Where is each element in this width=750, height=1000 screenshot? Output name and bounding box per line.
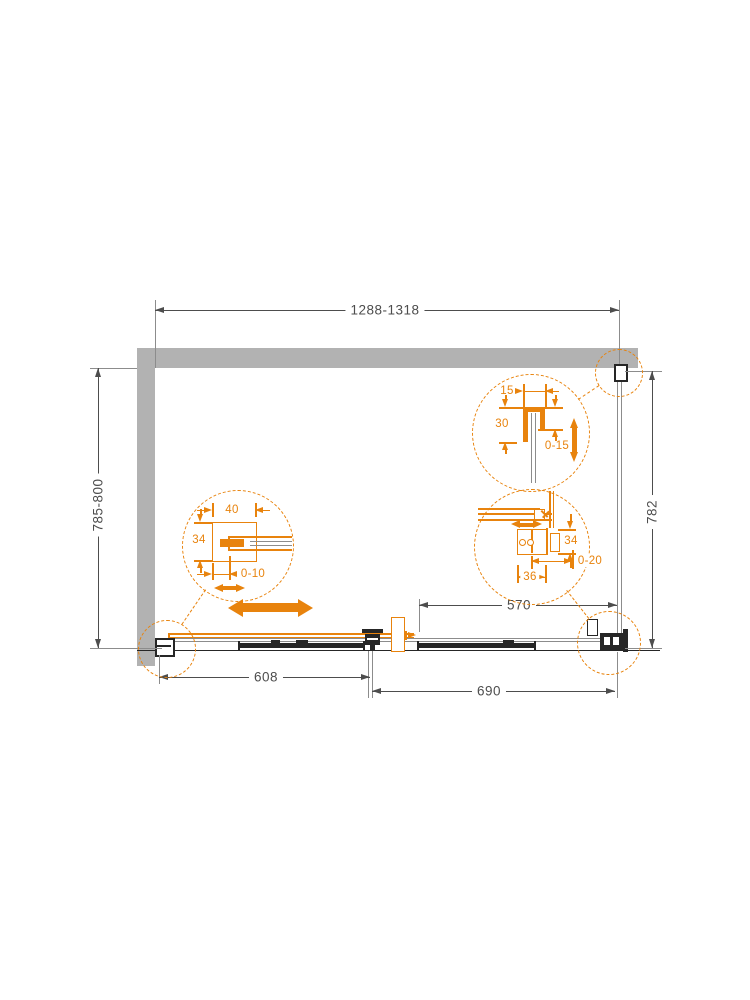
dim-arrow-icon bbox=[204, 571, 212, 577]
door-handle bbox=[391, 617, 405, 652]
carriage-stem bbox=[370, 645, 375, 650]
shower-enclosure-plan-drawing: 1288-1318 785-800 782 570 608 690 40 bbox=[0, 0, 750, 1000]
glass-end-block bbox=[220, 539, 244, 547]
glass-line bbox=[549, 491, 551, 528]
detail-dim-tail bbox=[553, 391, 559, 393]
dim-arrow-icon bbox=[255, 507, 263, 513]
screw-hole bbox=[519, 539, 526, 546]
dim-arrow-icon bbox=[610, 307, 619, 313]
detail-dim-tail bbox=[505, 450, 507, 454]
clamp-block bbox=[550, 533, 560, 552]
track-line-lower bbox=[155, 641, 617, 642]
detail-ext bbox=[545, 407, 563, 409]
dim-arrow-icon bbox=[502, 399, 508, 407]
dim-label-door-section: 608 bbox=[249, 670, 283, 685]
leader-line bbox=[578, 385, 599, 400]
side-glass-line-inner bbox=[621, 377, 622, 633]
detail-label-width: 15 bbox=[500, 385, 513, 397]
dim-arrow-icon bbox=[197, 514, 203, 522]
sliding-door-end-arrow-icon bbox=[408, 632, 416, 638]
door-rail-bar-right bbox=[418, 643, 535, 648]
dim-arrow-icon bbox=[155, 307, 164, 313]
detail-ext bbox=[538, 429, 563, 431]
dim-arrow-icon bbox=[531, 558, 539, 564]
dim-arrow-icon bbox=[229, 571, 237, 577]
detail-ext bbox=[194, 560, 212, 562]
bar-cap-1 bbox=[238, 641, 240, 650]
u-profile-right-leg bbox=[540, 407, 545, 429]
door-rail-bar-left bbox=[240, 643, 364, 648]
sliding-door-end-bar bbox=[405, 631, 407, 640]
adjust-arrow-icon bbox=[236, 584, 245, 592]
detail-label-width: 34 bbox=[189, 534, 208, 546]
callout-circle-top-bracket bbox=[595, 349, 643, 397]
adjust-arrow-icon bbox=[533, 520, 542, 528]
glass-line bbox=[535, 413, 536, 483]
leader-line bbox=[181, 589, 206, 624]
profile-slot-line bbox=[228, 549, 292, 551]
detail-ext bbox=[558, 529, 576, 531]
dim-arrow-icon bbox=[372, 688, 381, 694]
detail-dim-tail bbox=[263, 510, 270, 512]
dim-label-overall-width: 1288-1318 bbox=[345, 303, 424, 318]
bar-cap-4 bbox=[534, 641, 536, 650]
detail-dim-line bbox=[523, 391, 545, 393]
detail-ext bbox=[212, 563, 214, 580]
dim-label-overall-depth: 785-800 bbox=[91, 473, 106, 536]
roller-bump-2 bbox=[296, 640, 308, 643]
wall-left bbox=[137, 348, 155, 666]
adjust-arrow-shaft bbox=[222, 586, 237, 590]
glass-line bbox=[553, 491, 555, 528]
adjust-arrow-icon bbox=[570, 452, 578, 462]
glass-line bbox=[250, 541, 292, 542]
dim-arrow-icon bbox=[649, 371, 655, 380]
detail-ext bbox=[499, 407, 523, 409]
detail-dim-tail bbox=[197, 574, 204, 576]
carriage-cap bbox=[362, 629, 383, 633]
side-glass-line-outer bbox=[617, 377, 618, 633]
track-line-upper bbox=[155, 638, 617, 639]
dim-arrow-icon bbox=[552, 429, 558, 437]
detail-label-width: 36 bbox=[520, 571, 539, 583]
wall-top bbox=[137, 348, 638, 368]
slide-direction-arrow-right-icon bbox=[298, 599, 313, 617]
detail-label-adjustment: 0-20 bbox=[575, 555, 605, 567]
roller-bump-3 bbox=[503, 640, 514, 643]
dim-arrow-icon bbox=[419, 602, 428, 608]
rail-line bbox=[478, 508, 540, 510]
detail-ext bbox=[572, 550, 574, 569]
detail-label-depth: 40 bbox=[225, 504, 238, 516]
dim-arrow-icon bbox=[564, 558, 572, 564]
detail-ext bbox=[499, 442, 517, 444]
adjust-arrow-shaft bbox=[572, 428, 577, 452]
bar-cap-3 bbox=[417, 641, 419, 650]
screw-hole bbox=[527, 539, 534, 546]
glass-line bbox=[531, 413, 532, 483]
dim-arrow-icon bbox=[608, 602, 617, 608]
detail-ext bbox=[545, 565, 547, 583]
adjust-arrow-icon bbox=[214, 584, 223, 592]
dim-arrow-icon bbox=[606, 688, 615, 694]
dim-arrow-icon bbox=[95, 639, 101, 648]
dim-arrow-icon bbox=[567, 521, 573, 529]
adjust-arrow-shaft bbox=[519, 523, 534, 527]
detail-ext bbox=[523, 384, 525, 407]
dim-arrow-icon bbox=[95, 368, 101, 377]
glass-line bbox=[250, 545, 292, 546]
slide-direction-arrow-shaft bbox=[243, 603, 298, 612]
detail-label-depth: 30 bbox=[495, 418, 508, 430]
carriage-slit bbox=[367, 638, 378, 640]
detail-dim-tail bbox=[200, 568, 202, 573]
callout-circle-corner bbox=[577, 611, 641, 675]
callout-circle-wall-profile bbox=[138, 620, 196, 678]
dim-arrow-icon bbox=[552, 399, 558, 407]
detail-ext bbox=[545, 384, 547, 407]
detail-ext bbox=[194, 522, 212, 524]
dim-arrow-icon bbox=[204, 507, 212, 513]
dim-label-panel-section: 690 bbox=[472, 684, 506, 699]
detail-dim-tail bbox=[570, 514, 572, 521]
dim-label-side-panel: 782 bbox=[645, 495, 660, 529]
detail-ext bbox=[212, 503, 214, 517]
detail-label-adjustment: 0-10 bbox=[241, 568, 265, 580]
dim-arrow-icon bbox=[515, 388, 523, 394]
u-profile-left-leg bbox=[523, 407, 528, 442]
clamp-plate bbox=[546, 528, 548, 555]
detail-dim-line bbox=[212, 574, 229, 576]
adjust-arrow-icon bbox=[511, 520, 520, 528]
dim-arrow-icon bbox=[361, 674, 370, 680]
detail-label-adjustment: 0-15 bbox=[545, 440, 569, 452]
adjust-arrow-icon bbox=[570, 418, 578, 428]
roller-bump-1 bbox=[271, 640, 280, 643]
profile-slot-line bbox=[228, 536, 292, 538]
dim-arrow-icon bbox=[649, 639, 655, 648]
detail-label-height: 34 bbox=[561, 535, 580, 547]
